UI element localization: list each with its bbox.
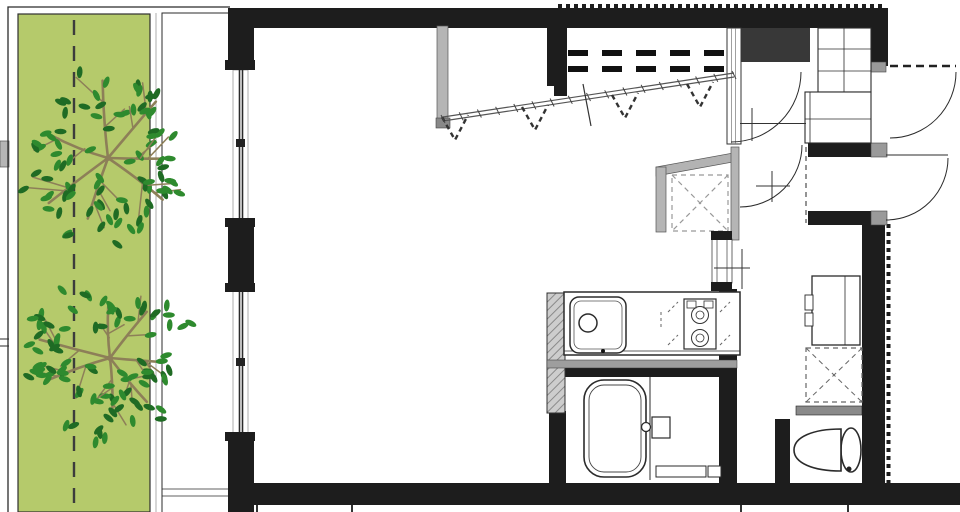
bathroom <box>584 377 721 480</box>
sliding-door <box>712 239 732 283</box>
entry-hall <box>727 28 871 144</box>
wall-bottom <box>237 483 960 505</box>
bathtub <box>584 380 646 477</box>
storage-cross-box <box>656 147 739 240</box>
wall-bath-top <box>564 367 736 377</box>
sink-faucet <box>579 314 597 332</box>
door-frame-column <box>727 28 741 144</box>
wall-pier <box>228 222 254 289</box>
window-latch <box>236 358 245 366</box>
door-jamb <box>871 211 887 225</box>
partitions <box>436 26 862 415</box>
door-jamb <box>871 143 887 157</box>
wall-top <box>230 8 888 28</box>
lawn <box>18 14 150 512</box>
toilet-room <box>794 428 861 472</box>
kitchen-side-wall <box>547 293 565 413</box>
door-swing-arc <box>890 72 956 138</box>
wardrobe-area <box>441 53 737 140</box>
washroom <box>805 276 862 402</box>
window-latch <box>236 139 245 147</box>
bath-control-box <box>652 417 670 438</box>
washbasin-vanity <box>812 276 860 345</box>
trunk-room-door <box>886 158 948 220</box>
toilet-tank <box>841 428 861 472</box>
floor-plan-canvas <box>0 0 960 512</box>
shoe-cabinet <box>818 28 871 92</box>
adjacent-unit-walls <box>257 505 848 512</box>
wall-partition <box>547 26 567 96</box>
wall-shelf <box>796 406 862 415</box>
wall-toilet-left <box>775 419 790 505</box>
toilet <box>794 429 841 471</box>
door-swing-arc <box>740 145 802 207</box>
partition-stub <box>437 26 448 126</box>
garden-strip <box>0 14 150 512</box>
kitchen <box>564 292 740 355</box>
kitchen-sink <box>570 297 626 353</box>
bath-step <box>656 466 706 477</box>
floor-plan <box>0 0 960 512</box>
entry-storage <box>805 92 871 143</box>
tub-knob <box>642 423 651 432</box>
wall-right <box>862 224 885 505</box>
entry-side-cabinet <box>740 28 810 62</box>
